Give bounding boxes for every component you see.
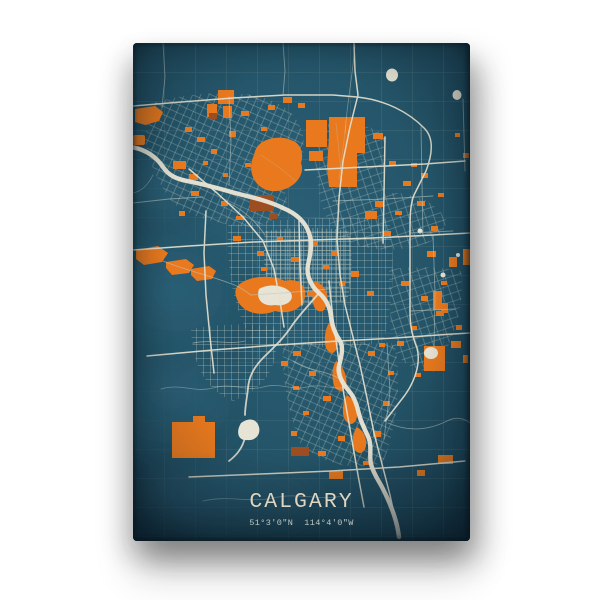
- calgary-map-poster: CALGARY 51°3'0"N 114°4'0"W: [133, 43, 470, 541]
- city-street-map: [133, 43, 470, 541]
- page-background: CALGARY 51°3'0"N 114°4'0"W: [0, 0, 600, 600]
